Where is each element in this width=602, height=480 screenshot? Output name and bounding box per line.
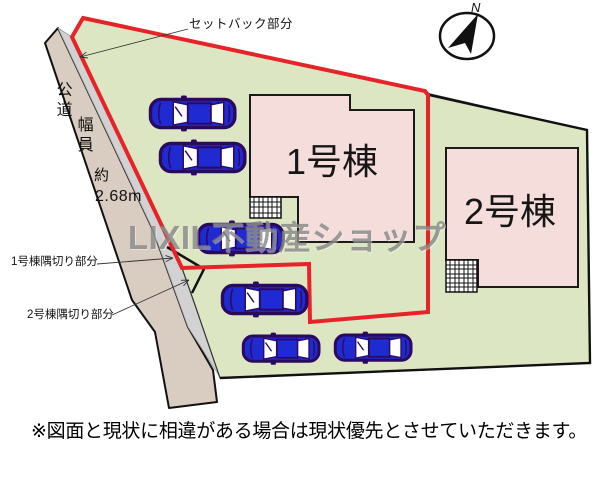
car-6: [335, 332, 411, 364]
building-1-porch-grid: [250, 197, 281, 218]
site-plan: N セットバック部分 1号棟隅切り部分 2号棟隅切り部分 公道 幅員 約 2.6…: [0, 0, 602, 480]
building-1-label: 1号棟: [286, 142, 378, 182]
compass: N: [440, 0, 494, 59]
car-2: [160, 140, 244, 176]
watermark: LIXIL不動産ショップ: [128, 220, 446, 256]
road-width-label: 幅員: [74, 116, 92, 156]
corner-cut-2-label: 2号棟隅切り部分: [27, 309, 114, 322]
building-2-label: 2号棟: [464, 192, 556, 232]
car-1: [150, 96, 234, 132]
disclaimer-text: ※図面と現状に相違がある場合は現状優先とさせていただきます。: [31, 422, 587, 443]
road-name-label: 公道: [53, 81, 71, 121]
setback-label: セットバック部分: [189, 18, 293, 32]
compass-north-label: N: [471, 0, 481, 15]
road-width-value: 2.68m: [95, 188, 142, 206]
building-2-porch-grid: [446, 260, 477, 292]
corner-cut-1-label: 1号棟隅切り部分: [11, 256, 98, 269]
car-5: [243, 333, 319, 365]
car-4: [222, 282, 306, 318]
road-approx-label: 約: [94, 168, 109, 185]
